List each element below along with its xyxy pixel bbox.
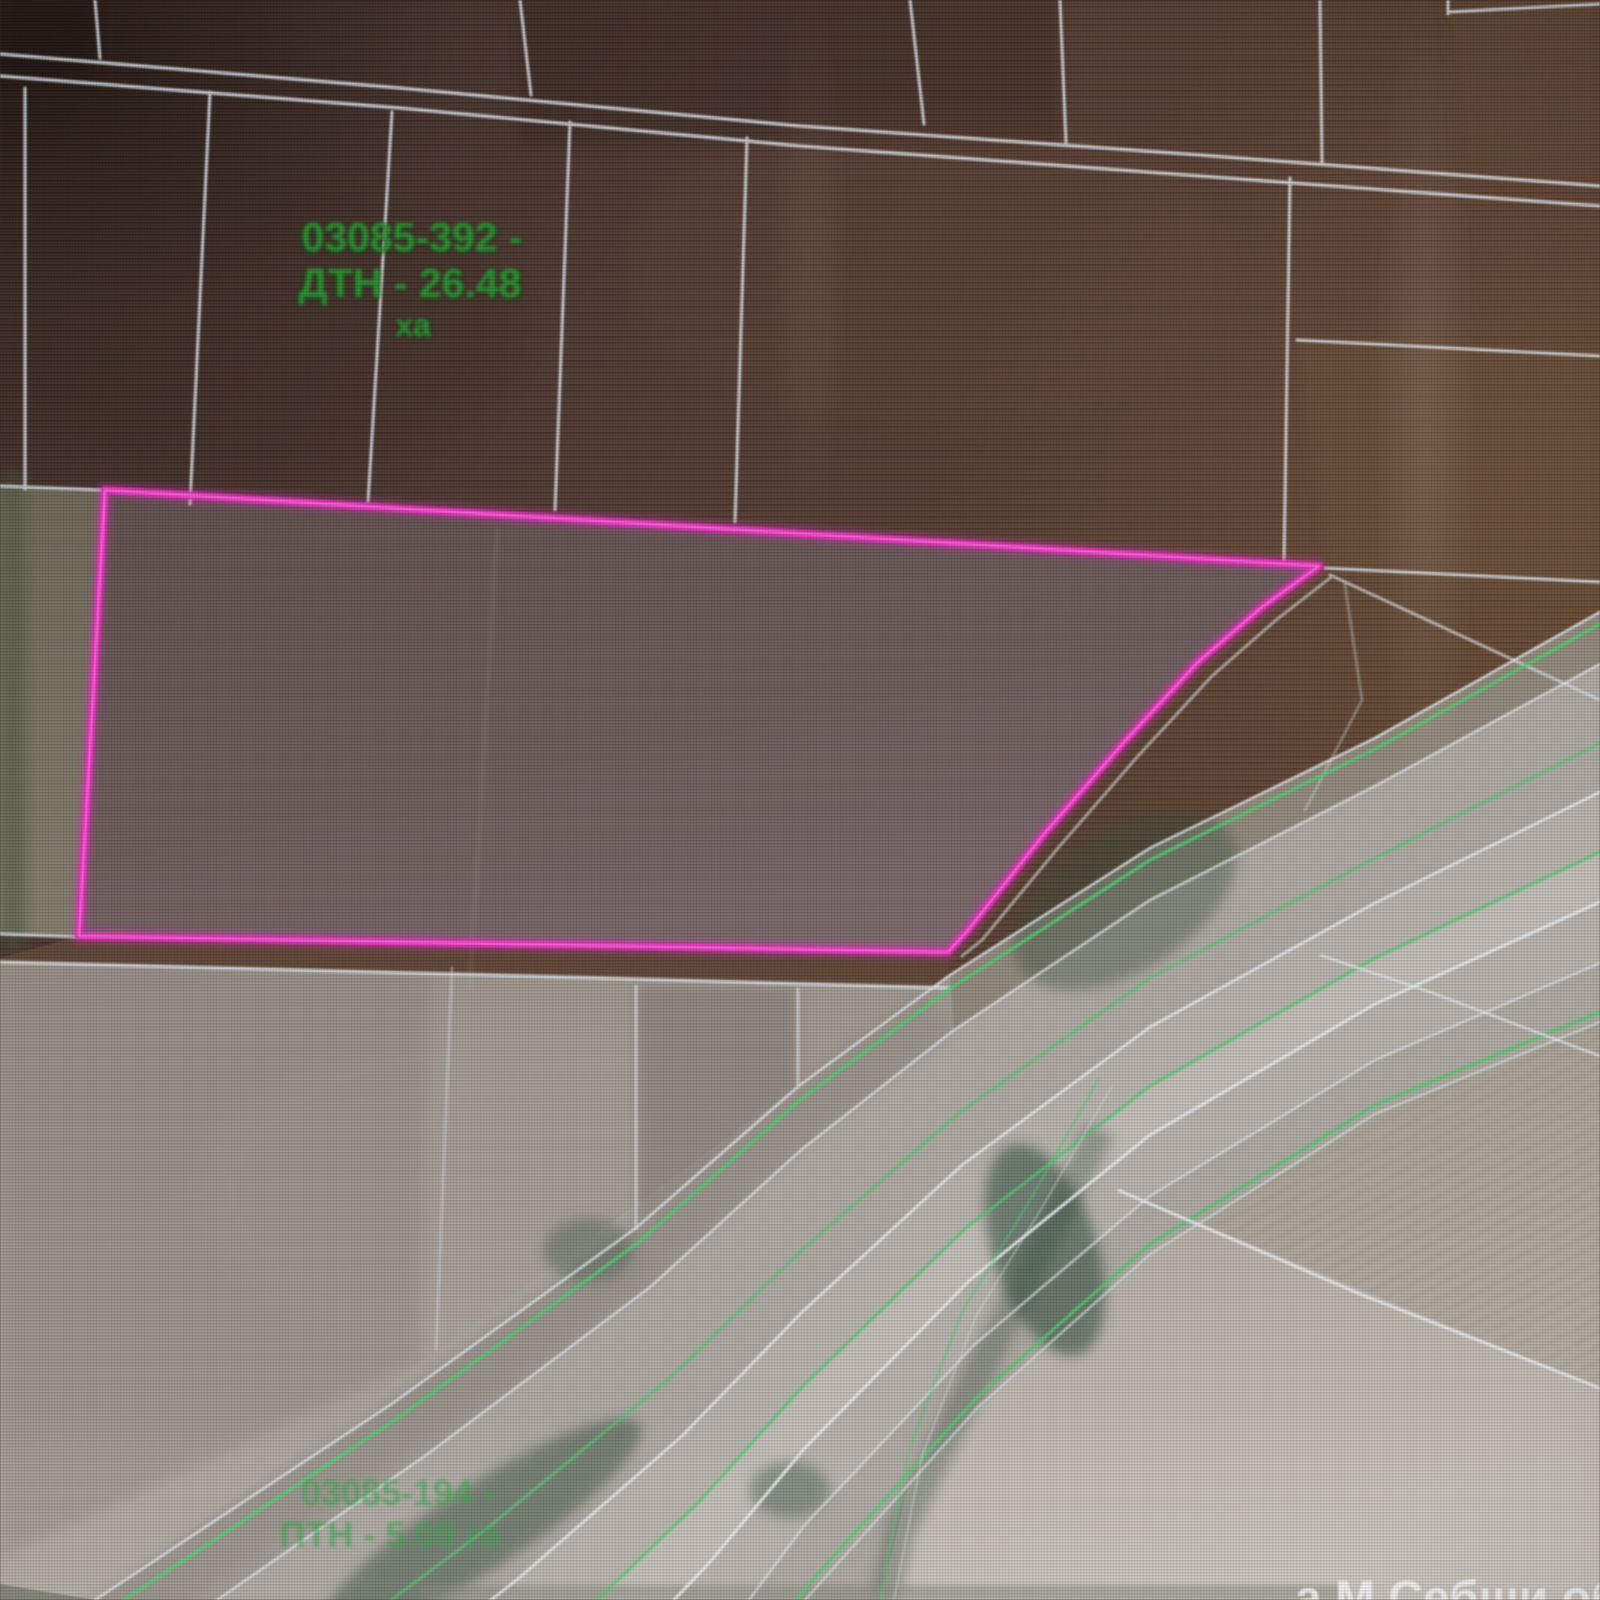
svg-text:ха: ха	[395, 307, 431, 343]
svg-text:ДТН - 26.48: ДТН - 26.48	[299, 260, 522, 306]
svg-text:03085-392 -: 03085-392 -	[301, 214, 522, 260]
